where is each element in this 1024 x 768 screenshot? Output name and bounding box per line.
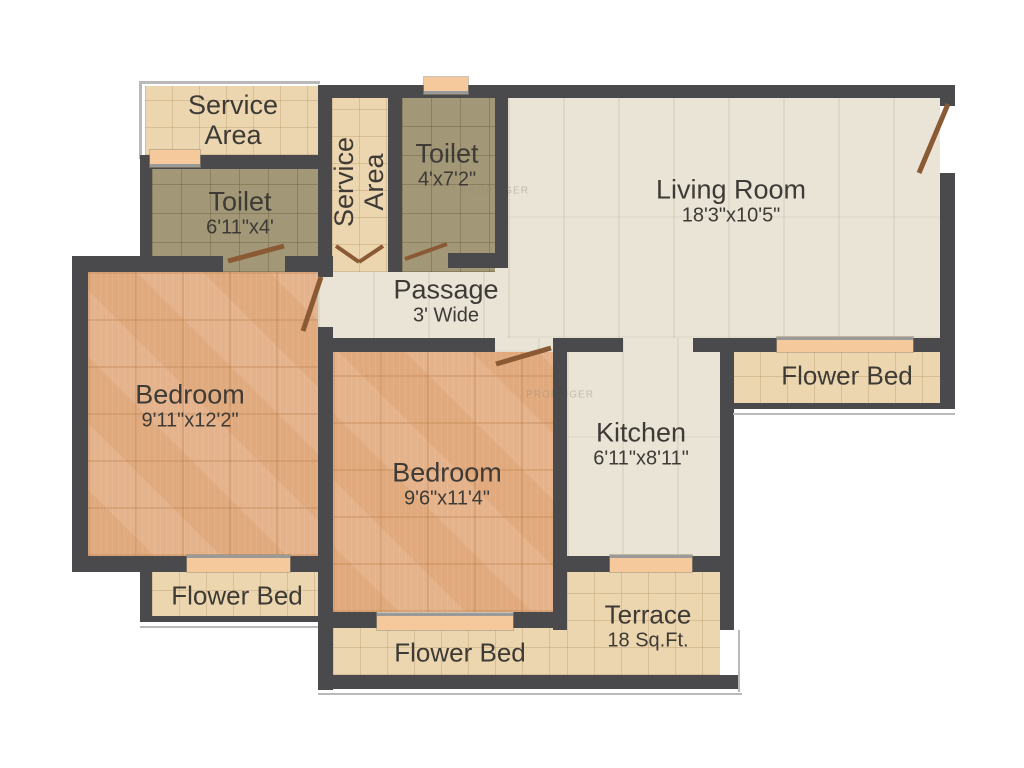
room-name: Toilet: [206, 187, 274, 217]
room-dims: 4'x7'2": [415, 169, 478, 191]
room-dims: 18 Sq.Ft.: [605, 629, 692, 651]
entrance-door-leaf: [919, 104, 948, 173]
room-label-kitchen: Kitchen 6'11"x8'11": [593, 418, 689, 471]
room-name: Living Room: [656, 175, 806, 205]
bedroom-mid-door-leaf: [496, 348, 551, 364]
service-area-door-leaf: [336, 246, 359, 262]
room-label-bedroom-mid: Bedroom 9'6"x11'4": [392, 458, 502, 511]
room-label-service-area-mid: Service Area: [329, 123, 389, 241]
room-name: Service Area: [329, 123, 389, 241]
room-name: Terrace: [605, 600, 692, 629]
room-label-service-area-top: Service Area: [167, 90, 299, 150]
room-name: Toilet: [415, 139, 478, 169]
room-name: Bedroom: [135, 380, 245, 410]
room-dims: 18'3"x10'5": [656, 205, 806, 227]
room-label-toilet-top: Toilet 4'x7'2": [415, 139, 478, 192]
room-name: Passage: [393, 275, 498, 305]
room-label-living-room: Living Room 18'3"x10'5": [656, 175, 806, 228]
room-name: Flower Bed: [781, 361, 913, 390]
toilet-top-door-leaf: [405, 244, 447, 259]
room-dims: 9'11"x12'2": [135, 410, 245, 432]
room-dims: 9'6"x11'4": [392, 488, 502, 510]
floor-plan: PROPTIGER PROPTIGER: [0, 0, 1024, 768]
room-label-flower-bed-right: Flower Bed: [781, 361, 913, 390]
room-name: Service Area: [167, 90, 299, 150]
room-label-flower-bed-bottom: Flower Bed: [394, 638, 526, 667]
room-name: Flower Bed: [394, 638, 526, 667]
room-dims: 6'11"x8'11": [593, 448, 689, 470]
toilet-left-door-leaf: [228, 246, 284, 261]
room-dims: 6'11"x4': [206, 217, 274, 239]
room-label-passage: Passage 3' Wide: [393, 275, 498, 328]
room-dims: 3' Wide: [393, 305, 498, 327]
room-name: Bedroom: [392, 458, 502, 488]
room-label-bedroom-left: Bedroom 9'11"x12'2": [135, 380, 245, 433]
bedroom-left-door-leaf: [303, 277, 321, 331]
room-label-toilet-left: Toilet 6'11"x4': [206, 187, 274, 240]
room-name: Kitchen: [593, 418, 689, 448]
service-area-door-leaf: [359, 246, 383, 262]
room-label-flower-bed-left: Flower Bed: [171, 581, 303, 610]
room-name: Flower Bed: [171, 581, 303, 610]
room-label-terrace: Terrace 18 Sq.Ft.: [605, 600, 692, 652]
